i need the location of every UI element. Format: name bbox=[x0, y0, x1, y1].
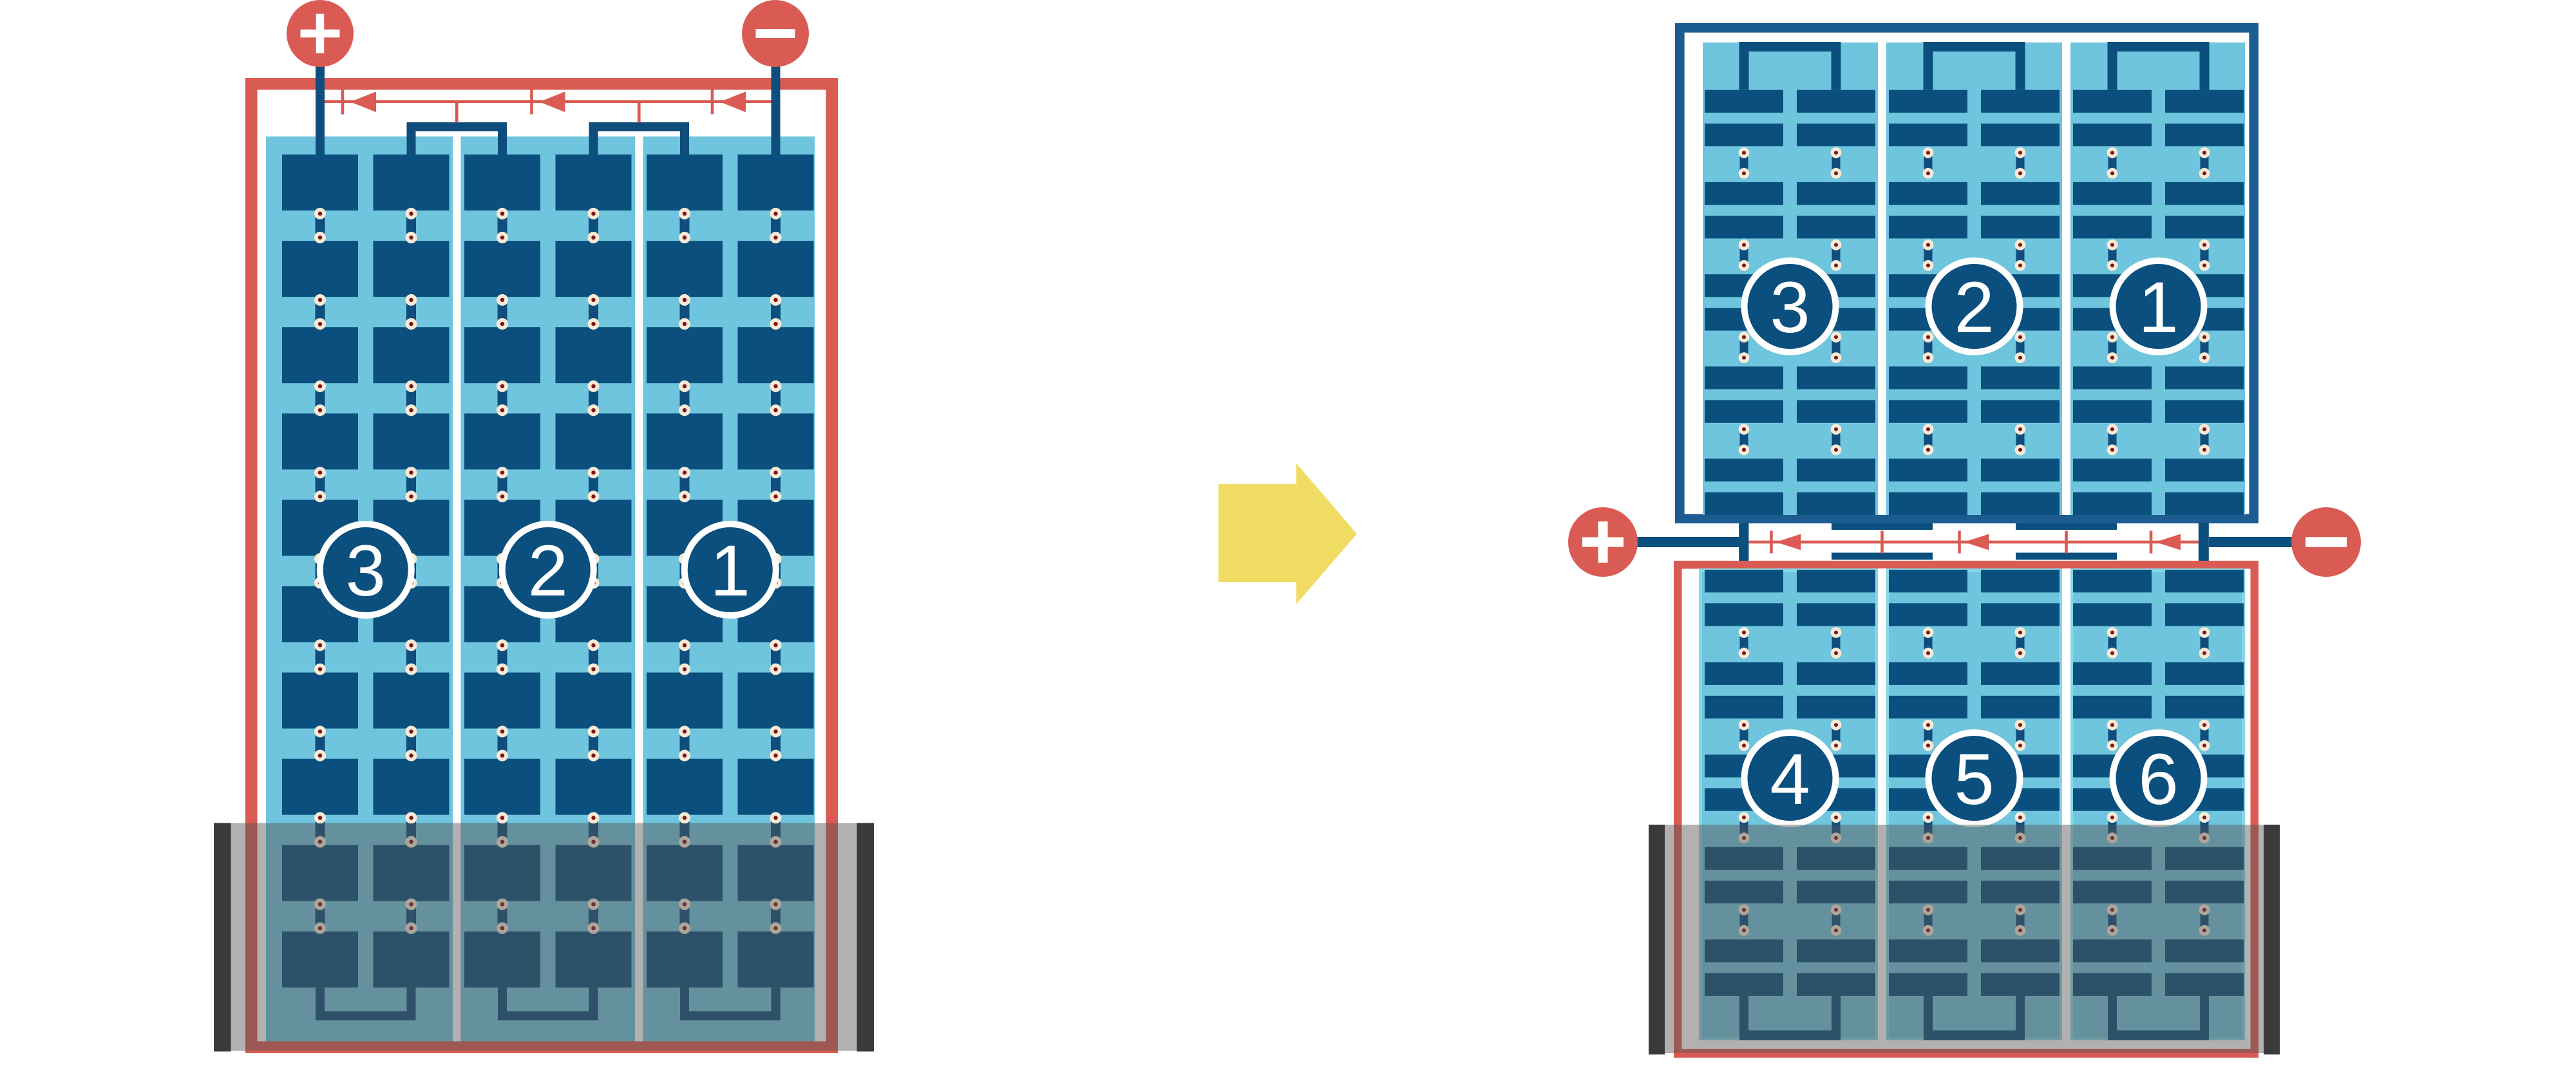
svg-text:3: 3 bbox=[346, 530, 386, 611]
svg-text:6: 6 bbox=[2138, 739, 2178, 820]
svg-text:1: 1 bbox=[2138, 267, 2178, 348]
svg-text:5: 5 bbox=[1954, 739, 1994, 820]
svg-text:2: 2 bbox=[528, 530, 568, 611]
svg-text:3: 3 bbox=[1770, 267, 1810, 348]
svg-text:1: 1 bbox=[710, 530, 750, 611]
svg-text:2: 2 bbox=[1954, 267, 1994, 348]
svg-text:4: 4 bbox=[1770, 739, 1810, 820]
